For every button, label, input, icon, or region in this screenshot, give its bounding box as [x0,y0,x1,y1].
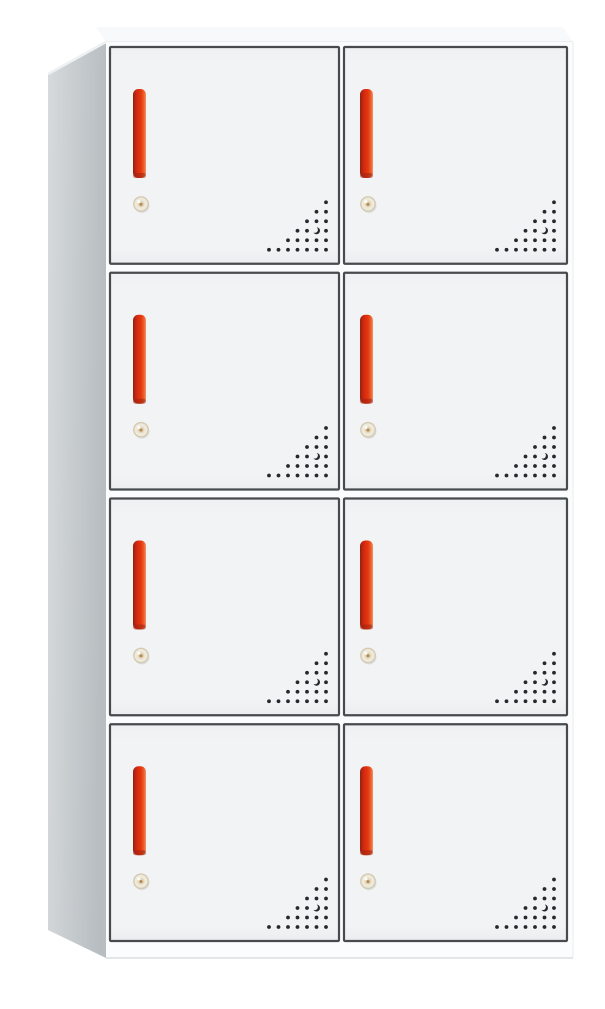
door-handle [133,766,146,855]
cabinet-top-surface [96,27,573,42]
door-handle [133,315,146,404]
locker-door [344,499,567,716]
locker-door [344,273,567,490]
locker-door [344,724,567,941]
locker-cabinet-image [0,0,605,1009]
door-handle [133,89,146,178]
locker-door [110,47,339,264]
door-handle [360,315,373,404]
door-handle [133,541,146,630]
door-handle [360,766,373,855]
cabinet-side-panel [48,42,106,958]
door-handle [360,89,373,178]
locker-door [110,499,339,716]
product-image-canvas [0,0,605,1009]
locker-door [110,273,339,490]
locker-door [344,47,567,264]
door-handle [360,541,373,630]
locker-door [110,724,339,941]
